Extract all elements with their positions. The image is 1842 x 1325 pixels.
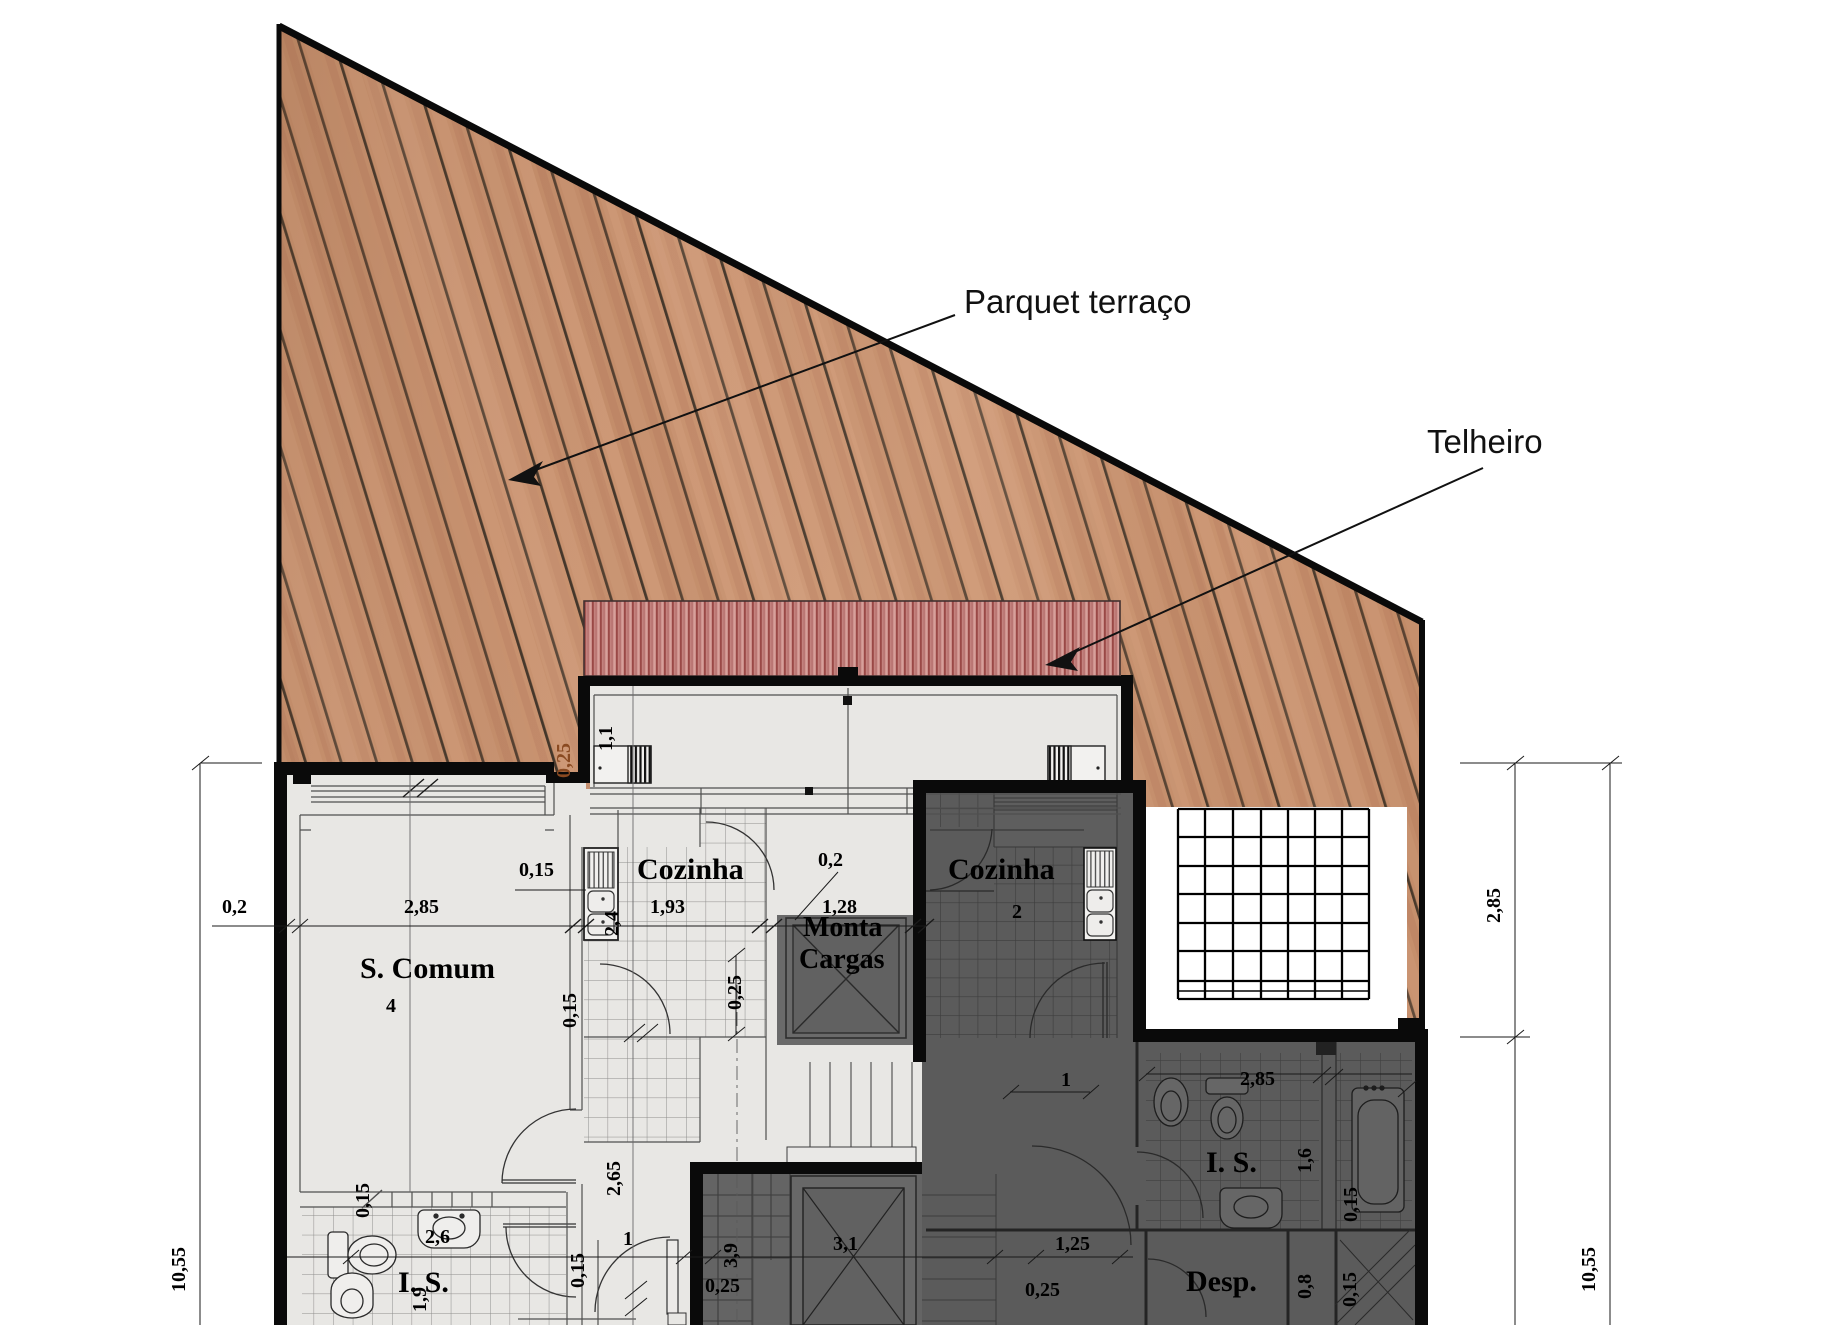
svg-text:Cozinha: Cozinha [948, 853, 1055, 886]
svg-text:3,9: 3,9 [720, 1243, 742, 1268]
svg-text:I. S.: I. S. [1206, 1146, 1257, 1179]
svg-text:2,85: 2,85 [404, 896, 439, 918]
svg-text:S. Comum: S. Comum [360, 952, 495, 985]
svg-text:1,7: 1,7 [584, 1321, 609, 1325]
svg-text:0,2: 0,2 [818, 849, 843, 871]
svg-text:1,1: 1,1 [595, 726, 617, 751]
svg-text:2,85: 2,85 [1240, 1068, 1275, 1090]
svg-text:10,55: 10,55 [168, 1247, 190, 1292]
svg-text:0,25: 0,25 [724, 975, 746, 1010]
svg-text:1,6: 1,6 [1294, 1148, 1316, 1173]
svg-text:2,4: 2,4 [601, 911, 623, 936]
svg-text:1,93: 1,93 [650, 896, 685, 918]
svg-text:0,2: 0,2 [222, 896, 247, 918]
svg-text:0,25: 0,25 [705, 1275, 740, 1297]
svg-text:0,15: 0,15 [567, 1253, 589, 1288]
svg-text:2,65: 2,65 [603, 1161, 625, 1196]
svg-text:Desp.: Desp. [1186, 1265, 1257, 1298]
svg-text:Cozinha: Cozinha [637, 853, 744, 886]
svg-text:0,15: 0,15 [519, 859, 554, 881]
svg-text:0,15: 0,15 [352, 1183, 374, 1218]
svg-text:Parquet terraço: Parquet terraço [964, 283, 1191, 320]
svg-text:0,8: 0,8 [1294, 1274, 1316, 1299]
svg-text:1: 1 [1061, 1069, 1071, 1091]
svg-text:Cargas: Cargas [799, 944, 885, 975]
svg-text:0,15: 0,15 [1339, 1272, 1361, 1307]
svg-text:3,1: 3,1 [833, 1233, 858, 1255]
svg-text:0,25: 0,25 [553, 743, 575, 778]
svg-text:2,6: 2,6 [425, 1226, 450, 1248]
svg-text:2: 2 [1012, 901, 1022, 923]
svg-text:10,55: 10,55 [1578, 1247, 1600, 1292]
svg-text:I. S.: I. S. [398, 1266, 449, 1299]
svg-text:0,15: 0,15 [1340, 1187, 1362, 1222]
svg-text:1,25: 1,25 [1055, 1233, 1090, 1255]
svg-text:1: 1 [623, 1228, 633, 1250]
svg-text:Telheiro: Telheiro [1427, 423, 1543, 460]
svg-text:0,15: 0,15 [559, 993, 581, 1028]
svg-text:Monta: Monta [803, 912, 882, 943]
svg-text:2,85: 2,85 [1483, 888, 1505, 923]
svg-text:0,25: 0,25 [1025, 1279, 1060, 1301]
svg-text:4: 4 [386, 995, 396, 1017]
